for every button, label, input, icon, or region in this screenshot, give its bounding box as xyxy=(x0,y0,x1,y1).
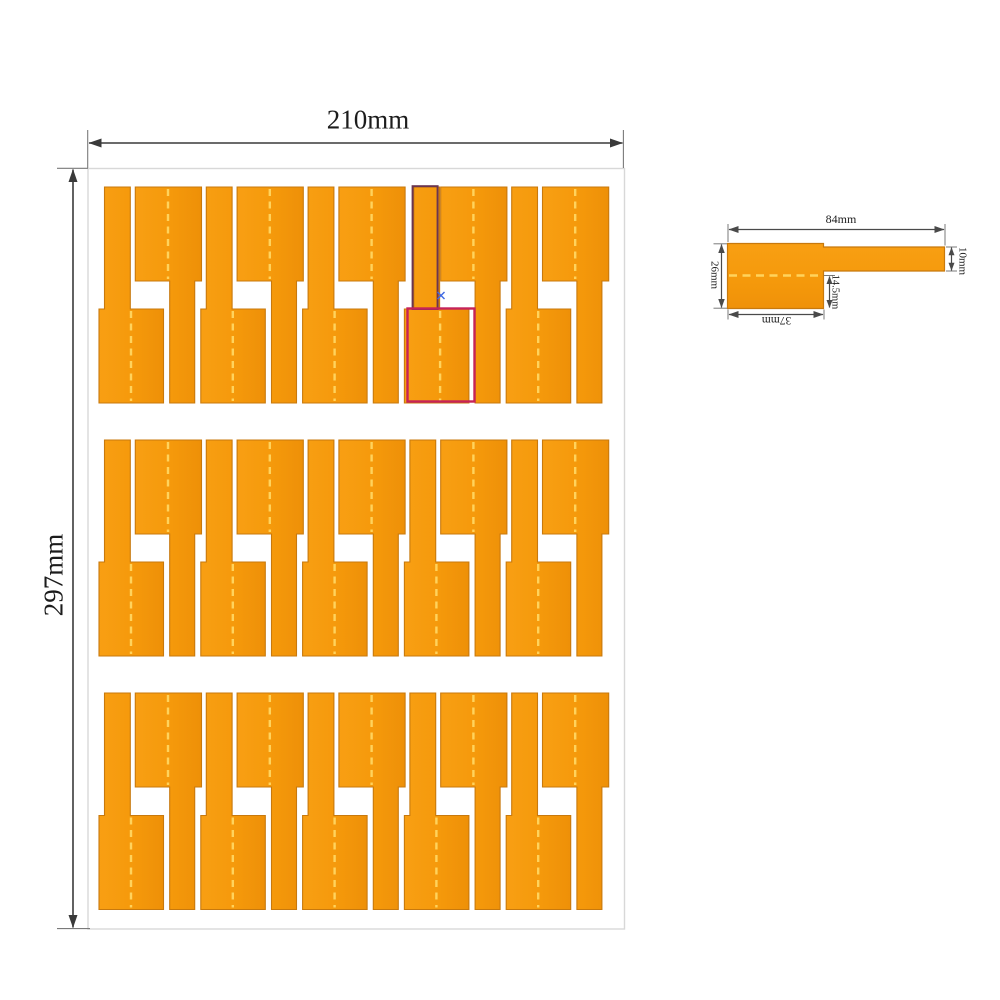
svg-text:297mm: 297mm xyxy=(39,534,69,617)
svg-text:210mm: 210mm xyxy=(327,105,410,135)
svg-text:26mm: 26mm xyxy=(709,261,721,290)
svg-text:14.5mm: 14.5mm xyxy=(830,275,841,310)
svg-text:10mm: 10mm xyxy=(957,247,969,276)
svg-text:37mm: 37mm xyxy=(762,314,791,326)
svg-text:84mm: 84mm xyxy=(826,212,857,226)
